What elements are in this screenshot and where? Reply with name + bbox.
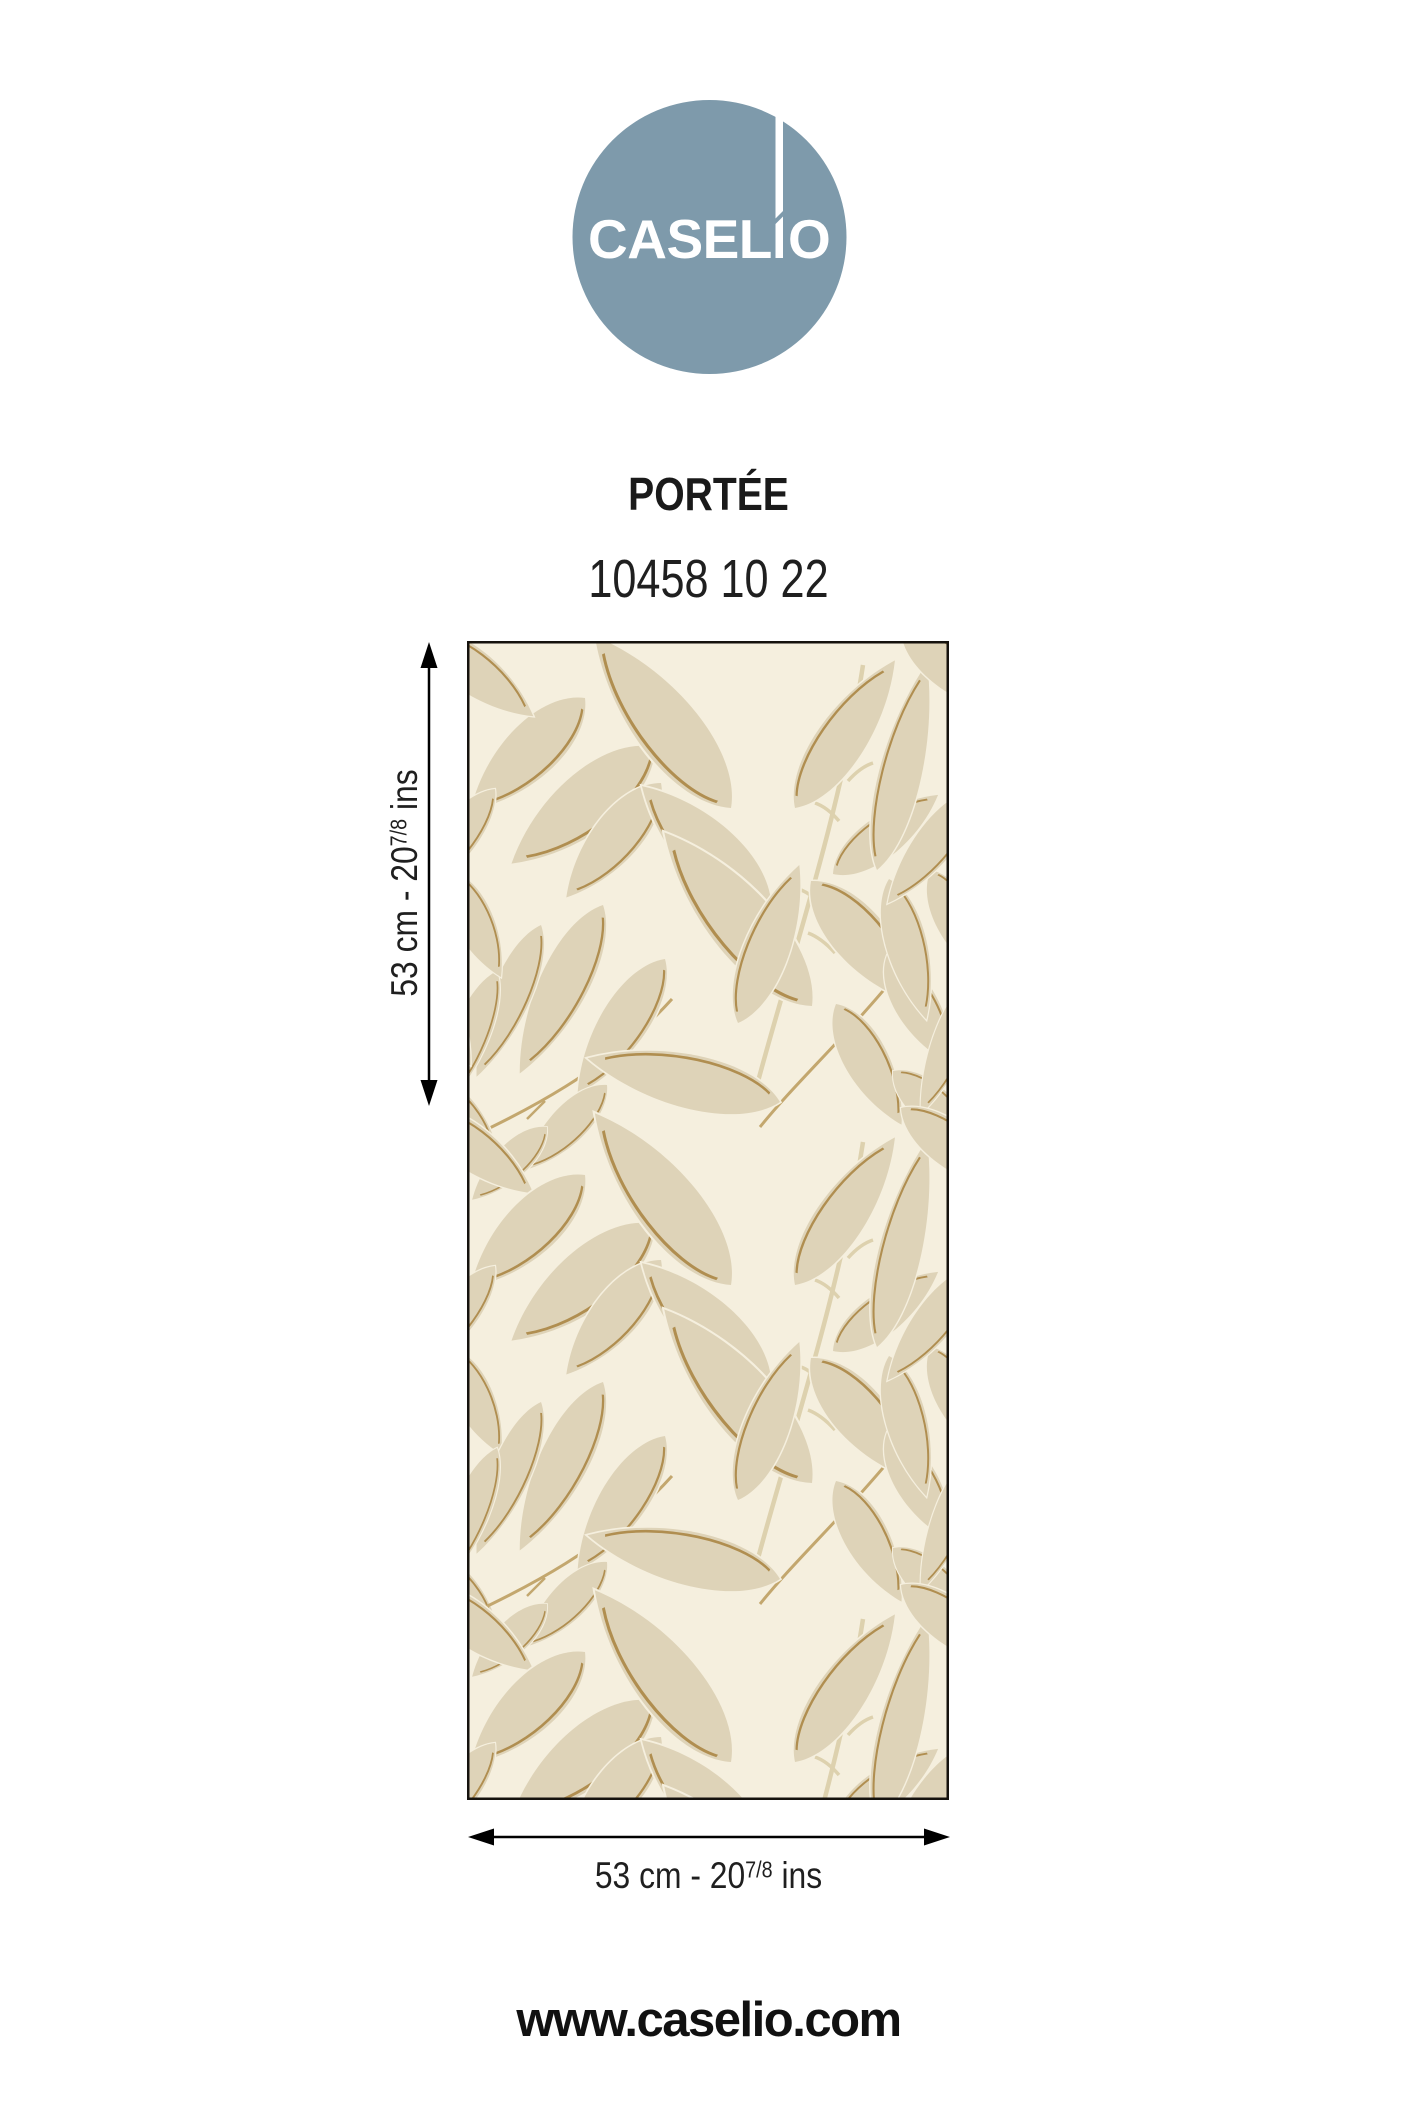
svg-text:O: O: [788, 208, 831, 270]
svg-text:CASEL: CASEL: [588, 208, 772, 270]
